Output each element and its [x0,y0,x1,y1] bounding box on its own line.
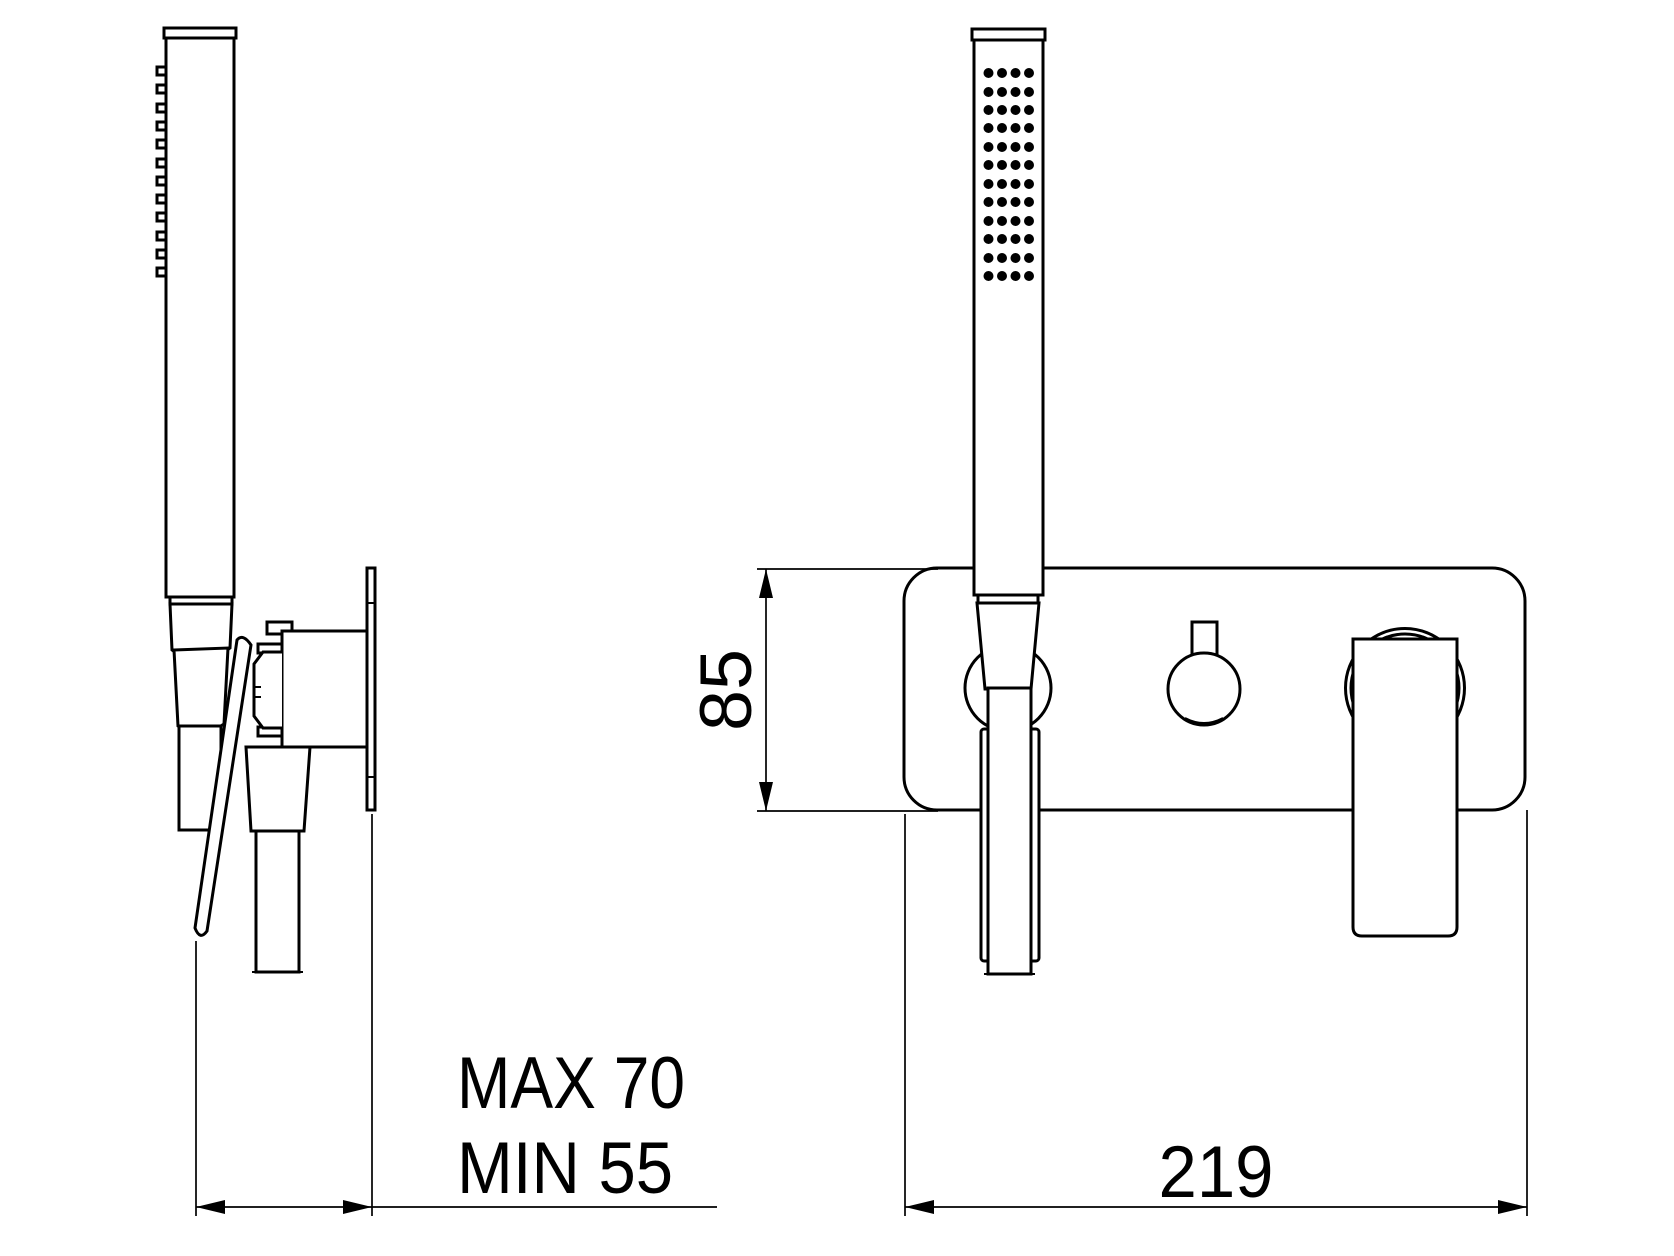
wand-body-front [974,40,1043,595]
handle-base-side [246,747,310,831]
depth-arrow-right [343,1200,372,1214]
width-arrow-right [1498,1200,1527,1214]
dim-label-plate-width: 219 [1159,1132,1274,1213]
mixer-lever-front [1346,629,1465,937]
wand-cap-front [972,29,1045,40]
diverter-circle [1168,653,1240,725]
cartridge-bellows [254,652,282,728]
height-arrow-top [759,569,773,598]
lever-handle-front [1353,639,1457,936]
wand-grip-front [988,688,1031,974]
wand-taper-front [977,603,1039,689]
mixer-body-side [246,622,367,972]
drawing-canvas: MAX 70 MIN 55 85 219 [0,0,1674,1256]
side-view [157,28,375,972]
body-block [282,631,367,747]
technical-drawing: MAX 70 MIN 55 85 219 [0,0,1674,1256]
wand-grip-upper-side [174,648,228,733]
height-arrow-bottom [759,782,773,811]
front-view [904,29,1525,974]
dim-label-depth-min: MIN 55 [457,1128,673,1209]
dim-label-plate-height: 85 [686,649,767,731]
diverter-stem [1192,622,1217,656]
dim-label-depth-max: MAX 70 [457,1043,685,1124]
handshower-side [157,28,236,830]
handshower-front [972,29,1045,974]
dimension-plate-height: 85 [686,569,938,811]
wand-body-side [166,38,234,597]
depth-arrow-left [196,1200,225,1214]
width-arrow-left [905,1200,934,1214]
handle-grip-side [256,831,299,972]
